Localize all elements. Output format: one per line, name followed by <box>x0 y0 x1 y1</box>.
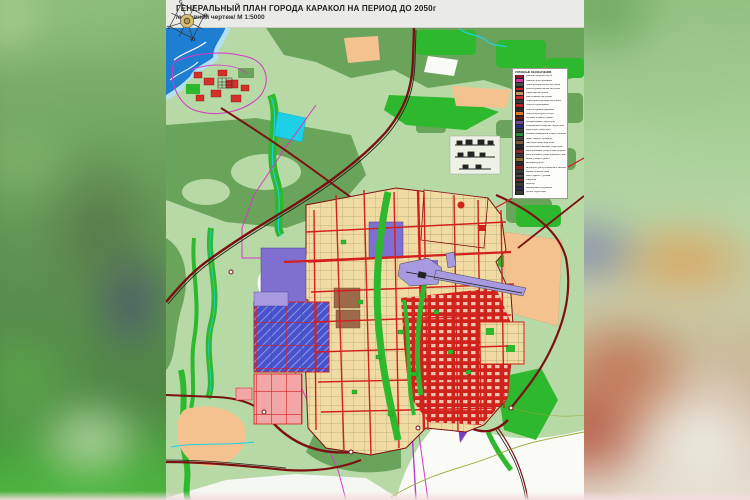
legend-label: сельскохозяйственные территории <box>526 146 563 148</box>
legend-label: объекты культуры и спорта <box>526 113 555 115</box>
legend-label: объекты образования <box>526 104 549 106</box>
map-subtitle: /основной чертеж/ М 1:5000 <box>176 14 584 22</box>
legend-label: инженерные сооружения <box>526 187 553 189</box>
southeast-grid <box>480 322 524 364</box>
legend-label: жилые улицы и дороги <box>526 158 550 160</box>
compass-rose: С Ю З В <box>166 0 208 42</box>
map-canvas: ГЕНЕРАЛЬНЫЙ ПЛАН ГОРОДА КАРАКОЛ НА ПЕРИО… <box>166 0 584 500</box>
legend-label: усадебная застройка <box>526 92 549 94</box>
legend-label: кладбища <box>526 179 537 181</box>
map-title: ГЕНЕРАЛЬНЫЙ ПЛАН ГОРОДА КАРАКОЛ НА ПЕРИО… <box>176 4 584 14</box>
legend-swatch <box>515 190 524 194</box>
blur-border-left-texture <box>0 0 167 500</box>
blur-border-right-texture <box>583 0 750 500</box>
legend-label: проектируемая жилая застройка <box>526 88 561 90</box>
compass-east-label: В <box>203 12 208 19</box>
new-residential-district <box>254 292 329 372</box>
road-cross-sections <box>450 136 500 174</box>
legend-label: зеленые насаждения общего пользования <box>526 133 567 135</box>
legend-label: санитарно-защитные зоны <box>526 142 554 144</box>
legend-label: прочие территории <box>526 191 546 193</box>
legend-label: водные объекты, реки <box>526 171 550 173</box>
legend-label: общественно-деловая застройка <box>526 100 561 102</box>
legend-title: УСЛОВНЫЕ ОБОЗНАЧЕНИЯ <box>515 71 566 74</box>
legend-label: парки, скверы, бульвары <box>526 138 553 140</box>
legend-label: граница городской черты <box>526 75 553 77</box>
legend-label: магистральные улицы районного значения <box>526 154 567 156</box>
legend: УСЛОВНЫЕ ОБОЗНАЧЕНИЯ граница городской ч… <box>512 68 568 199</box>
legend-label: зоны отдыха и туризма <box>526 175 551 177</box>
map-header: ГЕНЕРАЛЬНЫЙ ПЛАН ГОРОДА КАРАКОЛ НА ПЕРИО… <box>166 0 584 28</box>
legend-item: прочие территории <box>515 190 566 194</box>
legend-label: железная дорога <box>526 162 544 164</box>
legend-label: промышленные территории <box>526 121 556 123</box>
legend-label: территории транспорта <box>526 129 551 131</box>
legend-label: аэропорт <box>526 183 536 185</box>
legend-label: объекты здравоохранения <box>526 109 554 111</box>
blur-border-right <box>583 0 750 500</box>
legend-label: многоэтажная застройка <box>526 96 552 98</box>
screenshot-root: ГЕНЕРАЛЬНЫЙ ПЛАН ГОРОДА КАРАКОЛ НА ПЕРИО… <box>0 0 750 500</box>
legend-label: коммунально-складские территории <box>526 125 565 127</box>
legend-label: магистральные улицы общегородского значе… <box>526 150 567 152</box>
blur-border-left <box>0 0 167 500</box>
legend-label: существующая жилая застройка <box>526 84 561 86</box>
legend-items: граница городской чертыграница проектиро… <box>515 75 566 195</box>
legend-label: автодороги республиканского значения <box>526 167 567 169</box>
legend-label: граница проектирования <box>526 80 552 82</box>
legend-label: торговые объекты, рынки <box>526 117 553 119</box>
